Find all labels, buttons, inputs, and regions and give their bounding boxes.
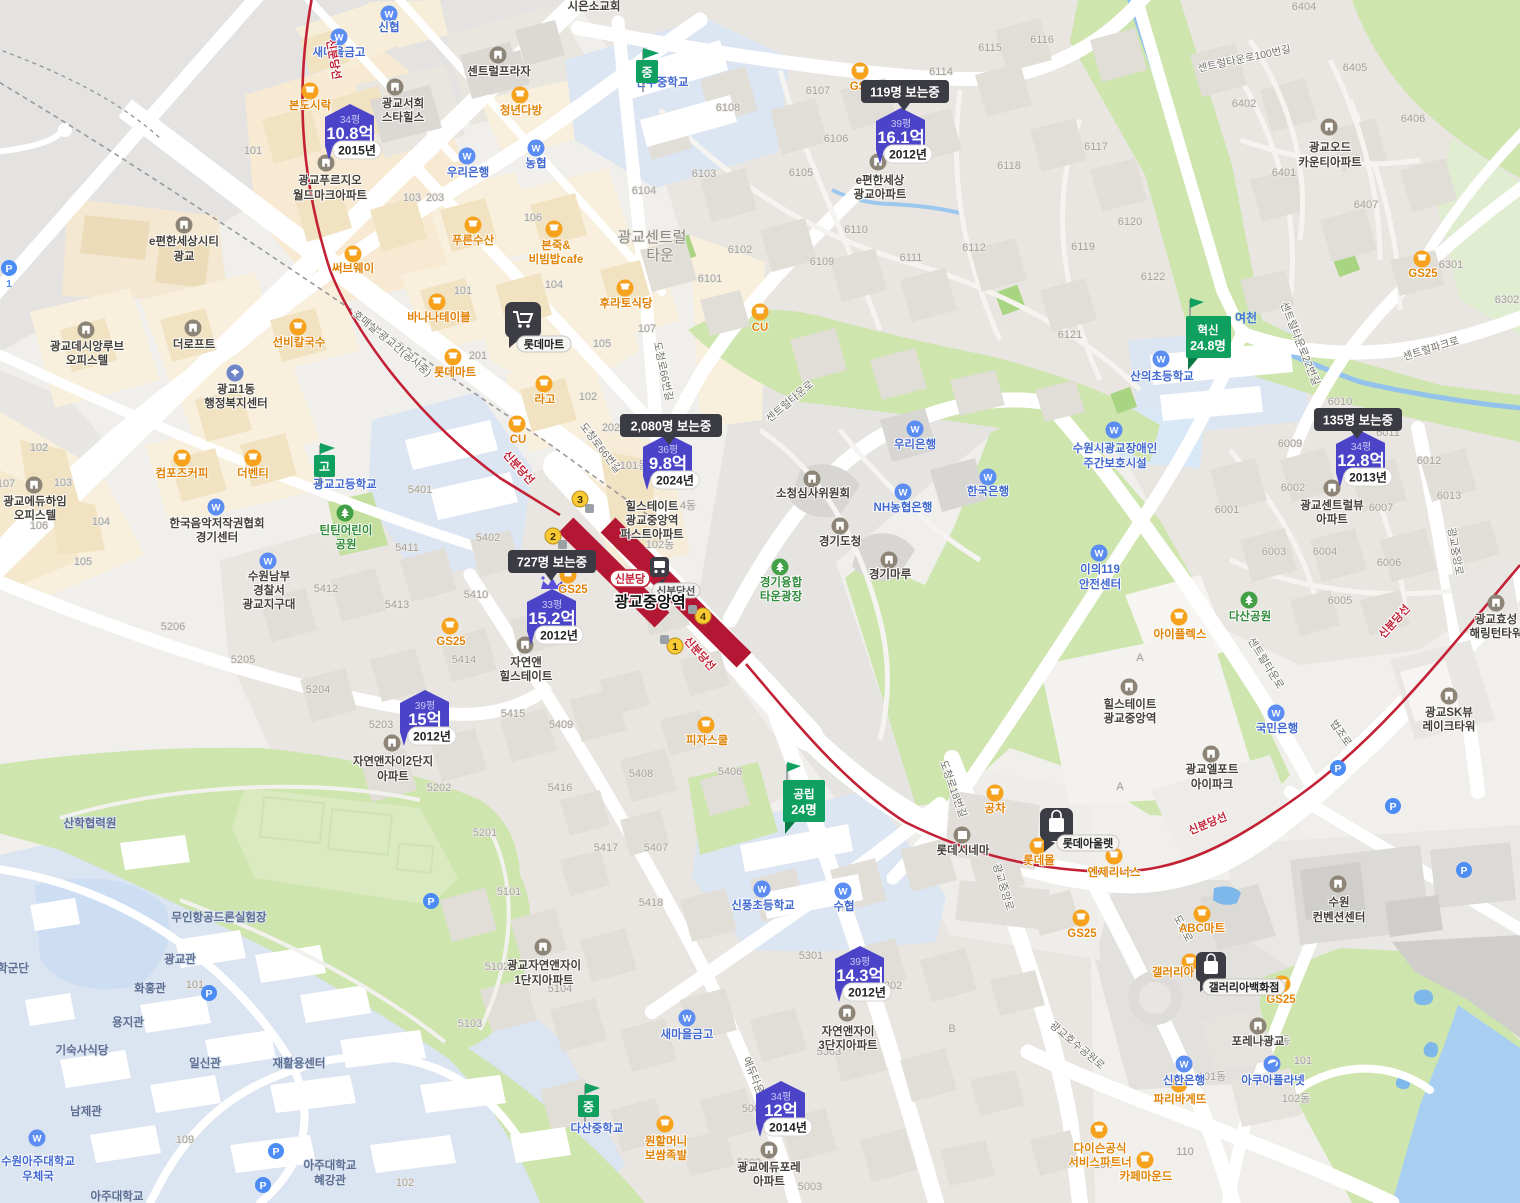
svg-text:자연앤: 자연앤 [510, 655, 542, 669]
svg-text:6005: 6005 [1328, 595, 1352, 607]
svg-text:경기융합: 경기융합 [760, 575, 803, 589]
svg-text:16.1억: 16.1억 [877, 128, 924, 147]
svg-text:롯데마트: 롯데마트 [434, 365, 477, 379]
svg-text:6013: 6013 [1437, 490, 1461, 502]
svg-text:혜강관: 혜강관 [314, 1173, 346, 1187]
svg-text:센트럴프라자: 센트럴프라자 [467, 64, 531, 78]
svg-text:라고: 라고 [534, 392, 556, 406]
svg-text:카운티아파트: 카운티아파트 [1298, 155, 1362, 169]
svg-text:아이플렉스: 아이플렉스 [1154, 627, 1207, 641]
svg-text:12.8억: 12.8억 [1337, 451, 1384, 470]
svg-text:6004: 6004 [1313, 546, 1337, 558]
svg-text:더벤티: 더벤티 [237, 466, 269, 480]
svg-text:6003: 6003 [1262, 546, 1286, 558]
svg-text:15.2억: 15.2억 [528, 609, 575, 628]
svg-text:15억: 15억 [408, 710, 442, 729]
svg-text:NH농협은행: NH농협은행 [874, 500, 933, 514]
svg-text:5413: 5413 [385, 599, 409, 611]
svg-text:104: 104 [545, 279, 563, 291]
svg-text:5414: 5414 [452, 654, 476, 666]
svg-text:105: 105 [593, 338, 611, 350]
svg-text:6116: 6116 [1030, 34, 1054, 46]
svg-text:24.8명: 24.8명 [1190, 338, 1226, 353]
svg-text:아파트: 아파트 [1316, 512, 1348, 526]
svg-text:광교고등학교: 광교고등학교 [313, 477, 377, 491]
svg-text:기숙사식당: 기숙사식당 [56, 1043, 109, 1057]
svg-text:6101: 6101 [698, 273, 722, 285]
svg-text:CU: CU [752, 322, 769, 334]
svg-text:광교자연앤자이: 광교자연앤자이 [507, 958, 581, 972]
svg-text:아주대학교: 아주대학교 [304, 1158, 357, 1172]
svg-text:2: 2 [550, 531, 556, 543]
svg-text:6106: 6106 [824, 133, 848, 145]
svg-text:6002: 6002 [1281, 482, 1305, 494]
svg-text:산의초등학교: 산의초등학교 [1130, 369, 1194, 383]
svg-text:1: 1 [6, 279, 12, 290]
svg-text:6402: 6402 [1232, 98, 1256, 110]
svg-text:1: 1 [672, 641, 678, 653]
svg-text:5402: 5402 [476, 532, 500, 544]
svg-text:102: 102 [579, 391, 597, 403]
svg-text:5412: 5412 [314, 583, 338, 595]
svg-text:6009: 6009 [1278, 438, 1302, 450]
svg-text:본죽&: 본죽& [541, 239, 570, 252]
svg-text:중: 중 [641, 66, 652, 80]
svg-text:컨벤션센터: 컨벤션센터 [1313, 910, 1366, 924]
svg-text:안전센터: 안전센터 [1079, 577, 1121, 591]
svg-text:A: A [1136, 652, 1144, 664]
svg-text:무인항공드론실험장: 무인항공드론실험장 [171, 910, 267, 924]
svg-text:퍼스트아파트: 퍼스트아파트 [620, 527, 684, 541]
svg-text:자연앤자이2단지: 자연앤자이2단지 [353, 754, 433, 768]
svg-text:107: 107 [638, 323, 656, 335]
svg-text:포레나광교: 포레나광교 [1232, 1034, 1285, 1048]
svg-text:다산공원: 다산공원 [1229, 609, 1271, 623]
svg-text:광교서희: 광교서희 [382, 96, 424, 110]
svg-text:5102: 5102 [485, 961, 509, 973]
svg-text:광교중앙역: 광교중앙역 [1104, 711, 1157, 725]
svg-text:6012: 6012 [1417, 455, 1441, 467]
svg-text:광교오드: 광교오드 [1309, 141, 1352, 154]
svg-text:다이슨공식: 다이슨공식 [1074, 1141, 1127, 1155]
svg-text:101: 101 [1294, 1055, 1312, 1067]
svg-text:고: 고 [319, 460, 330, 474]
svg-text:광교푸르지오: 광교푸르지오 [298, 173, 362, 187]
svg-text:월드마크아파트: 월드마크아파트 [293, 188, 367, 202]
svg-text:공원: 공원 [335, 537, 356, 551]
svg-text:광교중앙역: 광교중앙역 [614, 592, 685, 611]
svg-text:2024년: 2024년 [656, 474, 694, 488]
svg-text:109: 109 [176, 1134, 194, 1146]
svg-text:6406: 6406 [1401, 113, 1425, 125]
svg-text:롯데마트: 롯데마트 [524, 337, 564, 351]
svg-text:선비칼국수: 선비칼국수 [273, 335, 326, 349]
svg-text:일신관: 일신관 [189, 1056, 221, 1070]
svg-text:103: 103 [54, 477, 72, 489]
svg-text:신한은행: 신한은행 [1163, 1073, 1205, 1087]
svg-text:광교지구대: 광교지구대 [243, 597, 296, 611]
svg-text:6105: 6105 [789, 167, 813, 179]
svg-text:6001: 6001 [1215, 504, 1239, 516]
svg-text:광교중앙역: 광교중앙역 [626, 513, 679, 527]
svg-text:B: B [948, 1023, 955, 1035]
svg-text:6121: 6121 [1058, 329, 1082, 341]
svg-text:6407: 6407 [1354, 199, 1378, 211]
svg-text:6007: 6007 [1369, 502, 1393, 514]
svg-text:재활용센터: 재활용센터 [273, 1056, 326, 1070]
svg-text:국민은행: 국민은행 [1256, 721, 1298, 735]
svg-text:202: 202 [602, 422, 620, 434]
svg-text:101: 101 [186, 979, 204, 991]
svg-text:신분당: 신분당 [615, 572, 645, 586]
svg-text:3단지아파트: 3단지아파트 [818, 1038, 878, 1052]
svg-text:공립: 공립 [793, 788, 814, 801]
svg-text:소청심사위원회: 소청심사위원회 [776, 486, 850, 500]
svg-text:파리바게뜨: 파리바게뜨 [1154, 1092, 1207, 1106]
svg-text:새마을금고: 새마을금고 [661, 1027, 714, 1041]
svg-text:바나나테이블: 바나나테이블 [407, 310, 471, 324]
svg-text:한국음악저작권협회: 한국음악저작권협회 [169, 516, 264, 530]
svg-text:5407: 5407 [644, 842, 668, 854]
svg-text:6302: 6302 [1495, 294, 1519, 306]
svg-text:우체국: 우체국 [22, 1169, 54, 1183]
svg-text:본도시락: 본도시락 [289, 99, 332, 112]
svg-text:농협: 농협 [525, 156, 546, 170]
svg-text:6102: 6102 [728, 244, 752, 256]
svg-text:피자스쿨: 피자스쿨 [686, 733, 729, 747]
svg-text:힐스테이트: 힐스테이트 [500, 669, 553, 683]
svg-text:수원: 수원 [1328, 895, 1349, 909]
svg-text:다산중학교: 다산중학교 [571, 1121, 624, 1135]
svg-text:A: A [1116, 781, 1124, 793]
svg-text:12억: 12억 [764, 1101, 798, 1120]
svg-text:경기마루: 경기마루 [869, 567, 912, 581]
svg-text:컴포즈커피: 컴포즈커피 [156, 466, 209, 480]
svg-text:광교센트럴뷰: 광교센트럴뷰 [1300, 498, 1364, 512]
svg-text:4동: 4동 [680, 500, 696, 512]
svg-text:135명 보는중: 135명 보는중 [1323, 413, 1394, 428]
svg-text:경기도청: 경기도청 [819, 534, 861, 548]
svg-text:6301: 6301 [1439, 259, 1463, 271]
svg-text:101: 101 [454, 285, 472, 297]
svg-text:롯데몰: 롯데몰 [1023, 853, 1055, 867]
svg-text:6111: 6111 [900, 252, 923, 264]
svg-text:6107: 6107 [806, 85, 830, 97]
svg-text:6110: 6110 [844, 224, 868, 236]
svg-text:여천: 여천 [1235, 310, 1257, 325]
svg-text:106: 106 [524, 212, 542, 224]
svg-text:써브웨이: 써브웨이 [332, 261, 374, 275]
svg-text:2012년: 2012년 [848, 986, 886, 1000]
svg-text:119명 보는중: 119명 보는중 [870, 85, 940, 100]
svg-text:중: 중 [583, 1100, 594, 1114]
svg-text:5406: 5406 [718, 766, 742, 778]
svg-text:6115: 6115 [978, 42, 1002, 54]
svg-text:5410: 5410 [464, 589, 488, 601]
svg-text:5003: 5003 [798, 1181, 822, 1193]
svg-text:남제관: 남제관 [70, 1104, 102, 1118]
svg-text:6122: 6122 [1141, 271, 1165, 283]
svg-text:5202: 5202 [427, 782, 451, 794]
svg-text:4: 4 [700, 611, 706, 623]
svg-text:혁신: 혁신 [1197, 323, 1218, 337]
svg-text:롯데아울렛: 롯데아울렛 [1063, 836, 1114, 850]
svg-text:5103: 5103 [458, 1018, 482, 1030]
svg-text:105: 105 [74, 556, 92, 568]
svg-text:광교SK뷰: 광교SK뷰 [1425, 706, 1473, 719]
svg-text:후라토식당: 후라토식당 [600, 296, 653, 310]
svg-text:우리은행: 우리은행 [894, 437, 936, 451]
svg-text:신풍초등학교: 신풍초등학교 [731, 898, 795, 912]
svg-text:6010: 6010 [1328, 396, 1352, 408]
svg-text:자연앤자이: 자연앤자이 [822, 1024, 875, 1038]
svg-text:광교관: 광교관 [164, 952, 196, 966]
svg-text:3: 3 [577, 494, 583, 506]
svg-text:5101: 5101 [497, 886, 521, 898]
svg-text:6114: 6114 [929, 66, 953, 78]
svg-text:102동: 102동 [1282, 1093, 1310, 1105]
svg-text:타운광장: 타운광장 [760, 589, 803, 603]
svg-text:광교엘포트: 광교엘포트 [1186, 762, 1239, 776]
svg-text:시은소교회: 시은소교회 [568, 0, 621, 13]
svg-text:수원남부: 수원남부 [248, 569, 291, 583]
svg-text:2012년: 2012년 [540, 629, 578, 643]
svg-text:5204: 5204 [306, 684, 330, 696]
svg-text:102: 102 [30, 442, 48, 454]
svg-text:201: 201 [469, 350, 487, 362]
svg-text:행정복지센터: 행정복지센터 [204, 396, 267, 410]
svg-text:아주대학교: 아주대학교 [91, 1189, 144, 1203]
svg-text:6104: 6104 [632, 185, 656, 197]
svg-text:2014년: 2014년 [769, 1121, 807, 1135]
svg-text:6119: 6119 [1071, 241, 1095, 253]
svg-text:6103: 6103 [692, 168, 716, 180]
svg-text:104: 104 [92, 516, 110, 528]
svg-text:5416: 5416 [548, 782, 572, 794]
svg-text:6401: 6401 [1272, 167, 1296, 179]
svg-text:5408: 5408 [629, 768, 653, 780]
svg-text:107: 107 [0, 478, 15, 490]
svg-text:GS25: GS25 [1266, 994, 1296, 1006]
svg-text:주간보호시설: 주간보호시설 [1083, 456, 1146, 470]
svg-text:광교효성: 광교효성 [1475, 612, 1517, 626]
svg-text:오피스텔: 오피스텔 [14, 508, 56, 522]
svg-text:롯데시네마: 롯데시네마 [937, 843, 990, 857]
svg-text:타운: 타운 [646, 247, 674, 264]
svg-text:e편한세상: e편한세상 [856, 173, 905, 187]
svg-text:수원시광교장애인: 수원시광교장애인 [1073, 441, 1158, 455]
svg-text:아파트: 아파트 [753, 1174, 785, 1188]
svg-text:경기센터: 경기센터 [196, 530, 238, 544]
svg-text:103: 103 [403, 192, 421, 204]
svg-text:203: 203 [426, 192, 444, 204]
svg-text:힐스테이트: 힐스테이트 [1104, 697, 1157, 711]
svg-text:광교에듀하임: 광교에듀하임 [3, 494, 66, 508]
svg-text:6109: 6109 [810, 256, 834, 268]
svg-text:레이크타워: 레이크타워 [1423, 719, 1476, 733]
svg-text:24명: 24명 [791, 802, 816, 817]
svg-text:오피스텔: 오피스텔 [66, 353, 108, 367]
svg-text:우리은행: 우리은행 [447, 165, 489, 179]
svg-text:2012년: 2012년 [889, 148, 927, 162]
svg-text:6404: 6404 [1292, 1, 1316, 13]
svg-text:화홍관: 화홍관 [134, 981, 166, 995]
svg-text:GS25: GS25 [1067, 928, 1097, 940]
svg-text:광교데시앙루브: 광교데시앙루브 [50, 339, 124, 353]
svg-text:2013년: 2013년 [1349, 471, 1387, 485]
svg-text:아이파크: 아이파크 [1191, 777, 1234, 791]
svg-text:727명 보는중: 727명 보는중 [517, 555, 588, 570]
svg-text:서비스파트너: 서비스파트너 [1068, 1155, 1131, 1169]
svg-text:힐스테이트: 힐스테이트 [626, 499, 679, 513]
svg-text:광교센트럴: 광교센트럴 [617, 229, 686, 246]
svg-text:공차: 공차 [984, 801, 1006, 815]
svg-text:수협: 수협 [833, 899, 854, 913]
svg-text:청년다방: 청년다방 [500, 103, 543, 117]
svg-text:경찰서: 경찰서 [253, 583, 285, 597]
svg-text:2012년: 2012년 [413, 730, 451, 744]
svg-text:스타힐스: 스타힐스 [382, 110, 425, 124]
svg-text:14.3억: 14.3억 [836, 966, 883, 985]
svg-text:GS25: GS25 [1408, 268, 1438, 280]
svg-text:5301: 5301 [799, 950, 823, 962]
svg-text:수원아주대학교: 수원아주대학교 [1, 1154, 75, 1168]
svg-text:6405: 6405 [1343, 62, 1367, 74]
svg-text:틴틴어린이: 틴틴어린이 [320, 523, 373, 537]
svg-text:6120: 6120 [1118, 216, 1142, 228]
svg-text:카페마운드: 카페마운드 [1120, 1169, 1173, 1183]
svg-text:102: 102 [396, 1177, 414, 1189]
svg-text:푸른수산: 푸른수산 [452, 233, 495, 247]
svg-text:GS25: GS25 [436, 636, 466, 648]
svg-text:한국은행: 한국은행 [967, 484, 1009, 498]
svg-text:산학협력원: 산학협력원 [64, 816, 117, 830]
svg-text:5401: 5401 [408, 484, 432, 496]
svg-text:2015년: 2015년 [338, 144, 376, 158]
svg-text:갤러리아: 갤러리아 [1152, 965, 1195, 979]
svg-text:6112: 6112 [962, 242, 986, 254]
svg-text:9.8억: 9.8억 [649, 454, 687, 473]
svg-text:5203: 5203 [369, 719, 393, 731]
svg-text:비빔밥cafe: 비빔밥cafe [529, 252, 584, 266]
svg-text:5409: 5409 [549, 719, 573, 731]
svg-text:아쿠아플라넷: 아쿠아플라넷 [1241, 1073, 1305, 1087]
svg-text:광교아파트: 광교아파트 [854, 187, 907, 201]
svg-text:갤러리아백화점: 갤러리아백화점 [1209, 980, 1280, 994]
svg-text:광교1동: 광교1동 [217, 383, 256, 396]
svg-text:5418: 5418 [639, 897, 663, 909]
svg-text:광교에듀포레: 광교에듀포레 [737, 1160, 800, 1174]
svg-text:101: 101 [244, 145, 262, 157]
svg-text:5415: 5415 [501, 708, 525, 720]
svg-text:5201: 5201 [473, 827, 497, 839]
svg-text:아파트: 아파트 [377, 769, 409, 783]
svg-text:용지관: 용지관 [112, 1015, 144, 1029]
svg-text:ABC마트: ABC마트 [1179, 921, 1225, 935]
svg-text:해링턴타워: 해링턴타워 [1470, 626, 1520, 640]
svg-text:더로프트: 더로프트 [173, 337, 216, 351]
svg-text:보쌈족발: 보쌈족발 [645, 1148, 688, 1162]
svg-text:5205: 5205 [231, 654, 255, 666]
svg-text:6118: 6118 [997, 160, 1021, 172]
svg-text:e편한세상시티: e편한세상시티 [149, 234, 219, 248]
svg-text:원할머니: 원할머니 [645, 1134, 687, 1148]
svg-text:5411: 5411 [395, 542, 419, 554]
svg-text:학군단: 학군단 [0, 961, 29, 975]
svg-text:5206: 5206 [161, 621, 185, 633]
svg-text:광교: 광교 [173, 250, 195, 263]
svg-text:신협: 신협 [378, 20, 399, 34]
svg-text:이의119: 이의119 [1080, 562, 1120, 576]
svg-text:6117: 6117 [1084, 141, 1108, 153]
svg-text:CU: CU [510, 434, 527, 446]
svg-text:1단지아파트: 1단지아파트 [514, 973, 574, 987]
svg-text:10.8억: 10.8억 [326, 124, 373, 143]
svg-text:엔제리너스: 엔제리너스 [1088, 865, 1141, 879]
svg-text:6006: 6006 [1377, 557, 1401, 569]
svg-text:5417: 5417 [594, 842, 618, 854]
svg-text:110: 110 [1176, 1146, 1194, 1158]
svg-text:GS25: GS25 [558, 584, 588, 596]
svg-text:6108: 6108 [716, 102, 740, 114]
svg-text:2,080명 보는중: 2,080명 보는중 [631, 419, 712, 434]
